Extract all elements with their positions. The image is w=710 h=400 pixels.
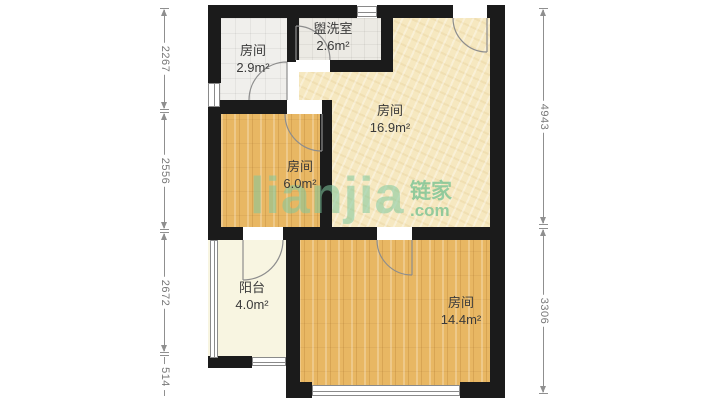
door-opening	[243, 227, 283, 240]
door-opening	[287, 100, 322, 114]
wall-segment	[460, 382, 505, 398]
dimension-left-2: 2556	[155, 112, 175, 230]
wall-segment	[208, 5, 221, 83]
door-opening	[296, 60, 330, 72]
wall-segment	[286, 382, 312, 398]
window-left	[208, 83, 220, 107]
window-top	[357, 6, 377, 17]
wall-segment	[208, 227, 243, 240]
room-label-bedroom-mid: 房间 6.0m²	[283, 159, 316, 193]
room-label-balcony: 阳台 4.0m²	[235, 280, 268, 314]
door-opening	[377, 227, 412, 240]
wall-segment	[412, 227, 490, 240]
window-balcony-side	[210, 240, 218, 358]
room-label-bedroom-large: 房间 14.4m²	[441, 295, 481, 329]
wall-segment	[320, 100, 332, 240]
floor-plan: 房间 2.9m² 盥洗室 2.6m² 房间 16.9m² 房间 6.0m² 阳台…	[0, 0, 710, 400]
room-label-bedroom-small: 房间 2.9m²	[236, 43, 269, 77]
dimension-left-3: 2672	[155, 232, 175, 353]
wall-segment	[490, 5, 505, 398]
window-bedroom-bottom	[312, 385, 460, 396]
dimension-left-1: 2267	[155, 8, 175, 110]
wall-segment	[208, 5, 357, 18]
wall-segment	[381, 5, 393, 72]
dimension-left-4: 514	[155, 355, 175, 398]
room-label-washroom: 盥洗室 2.6m²	[313, 21, 352, 55]
room-label-living: 房间 16.9m²	[370, 103, 410, 137]
wall-segment	[287, 5, 299, 62]
window-balcony-bottom	[252, 357, 286, 366]
wall-segment	[286, 233, 300, 398]
dimension-right-1: 4943	[534, 8, 554, 225]
wall-segment	[208, 107, 221, 240]
entrance-door-opening	[453, 5, 487, 18]
dimension-right-2: 3306	[534, 228, 554, 394]
